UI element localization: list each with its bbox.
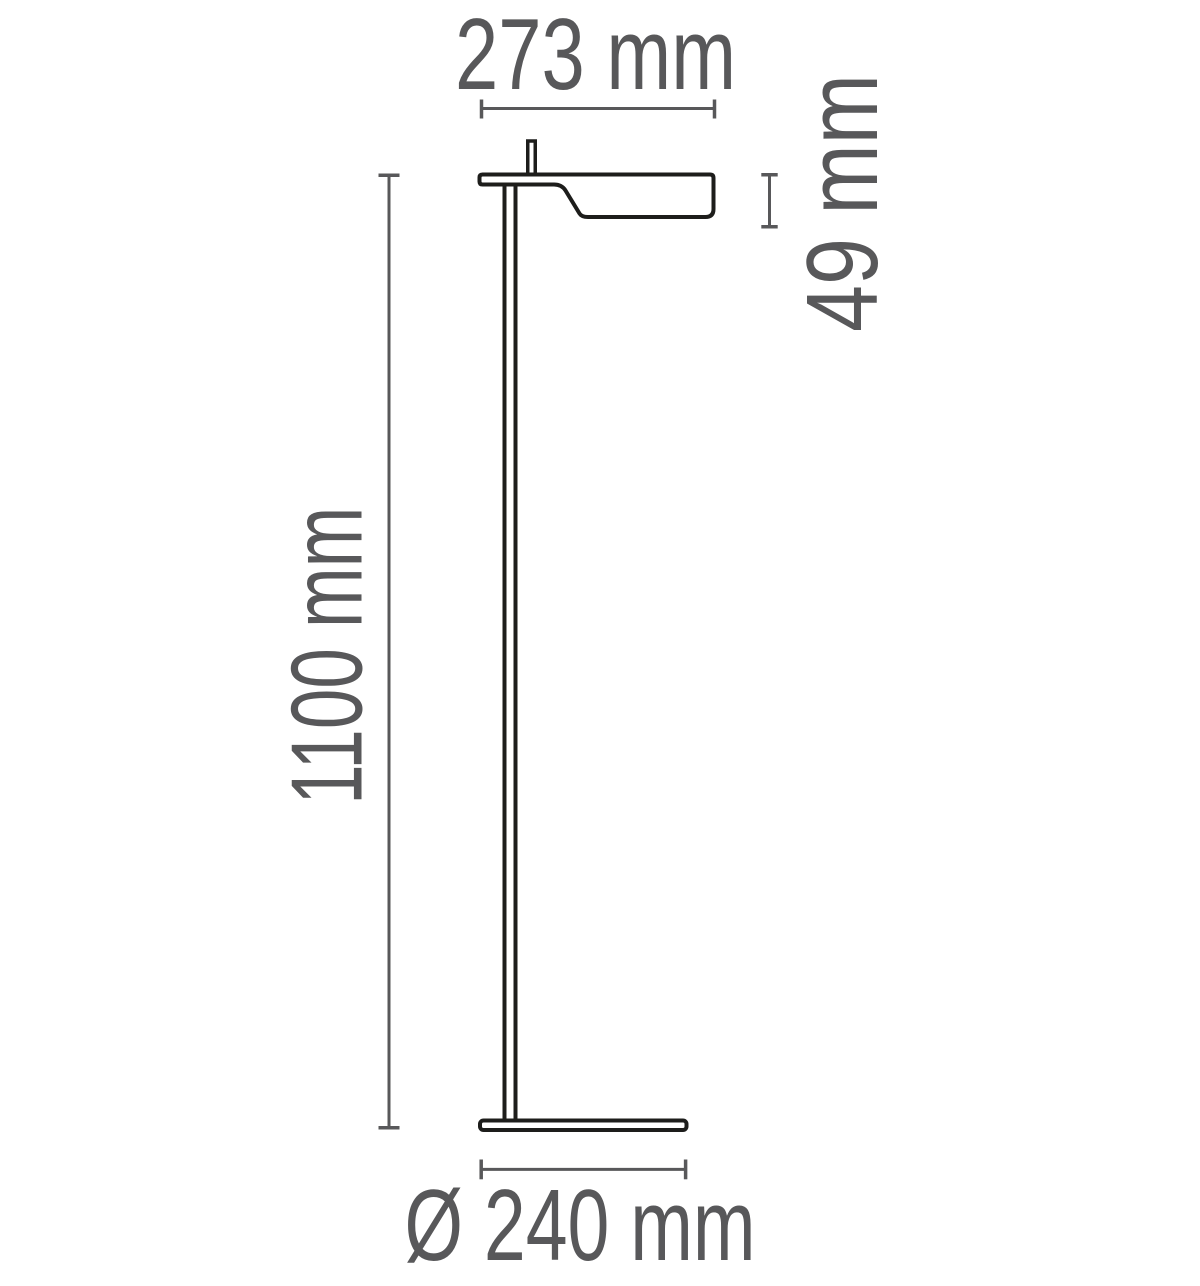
svg-text:273 mm: 273 mm <box>455 0 736 111</box>
svg-text:1100 mm: 1100 mm <box>272 507 384 805</box>
svg-text:49 mm: 49 mm <box>787 74 899 332</box>
svg-text:Ø 240 mm: Ø 240 mm <box>405 1170 756 1282</box>
